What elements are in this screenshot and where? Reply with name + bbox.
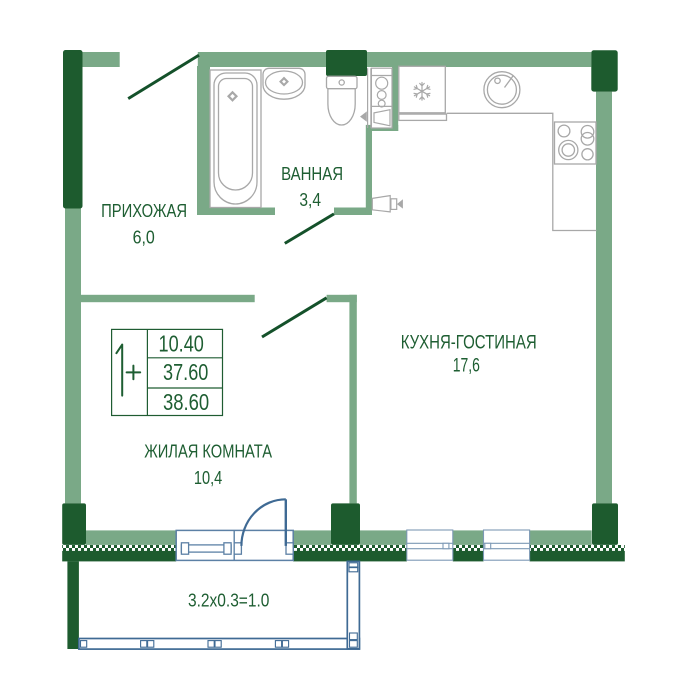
svg-text:37.60: 37.60 [163,359,208,385]
svg-text:3.2x0.3=1.0: 3.2x0.3=1.0 [188,590,269,611]
svg-text:10.40: 10.40 [159,331,204,357]
svg-text:ВАННАЯ: ВАННАЯ [281,163,343,184]
svg-text:КУХНЯ-ГОСТИНАЯ: КУХНЯ-ГОСТИНАЯ [401,332,537,353]
svg-text:ПРИХОЖАЯ: ПРИХОЖАЯ [101,200,187,221]
svg-text:10,4: 10,4 [194,467,222,488]
svg-text:3,4: 3,4 [299,189,321,210]
svg-text:17,6: 17,6 [453,356,480,377]
svg-text:38.60: 38.60 [163,389,209,415]
svg-text:6,0: 6,0 [133,227,155,248]
svg-text:ЖИЛАЯ КОМНАТА: ЖИЛАЯ КОМНАТА [144,441,272,462]
